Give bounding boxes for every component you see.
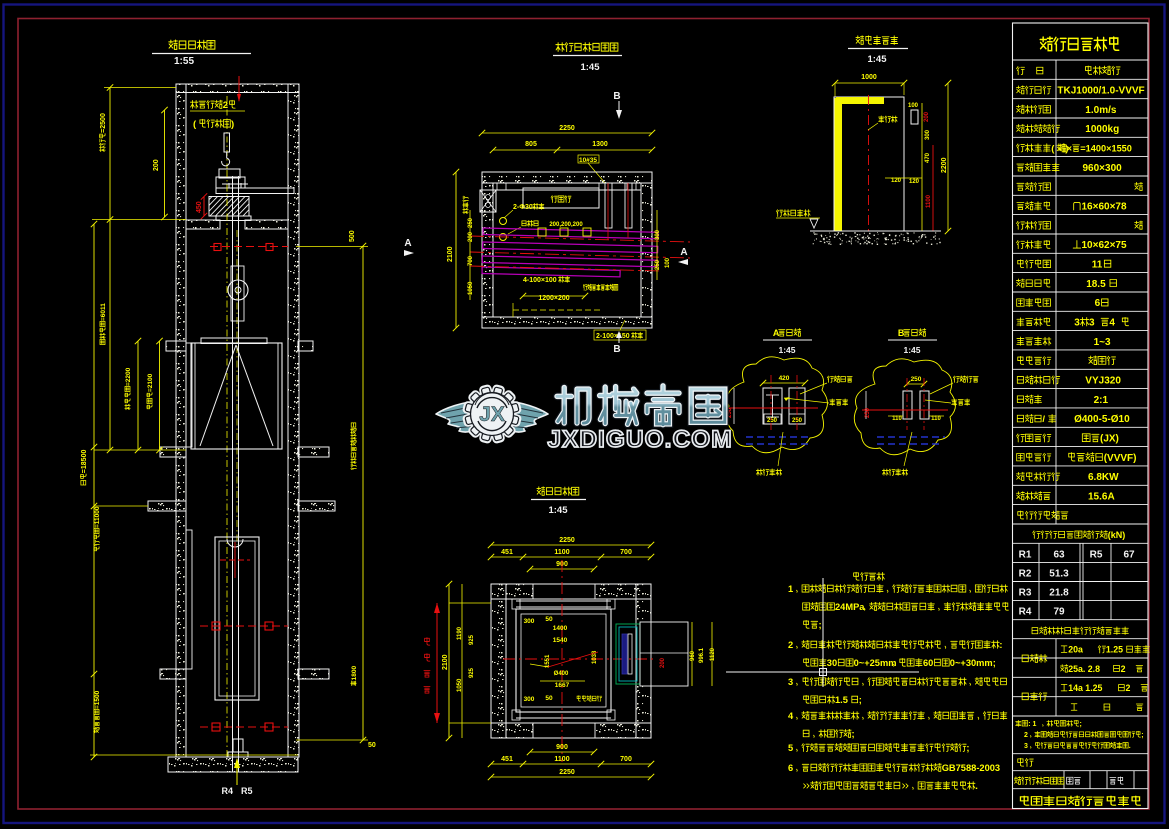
svg-text:110: 110 [931, 416, 941, 422]
svg-text:;: ; [966, 743, 969, 753]
svg-text:1:45: 1:45 [867, 54, 887, 65]
svg-text:2100: 2100 [442, 654, 449, 670]
svg-text:4-100×100: 4-100×100 [523, 277, 557, 284]
svg-text:6: 6 [788, 763, 793, 773]
svg-text:925: 925 [469, 667, 475, 678]
svg-text:R3: R3 [1019, 588, 1032, 599]
svg-text:;: ; [1080, 721, 1082, 728]
svg-text:R1: R1 [1019, 549, 1032, 560]
svg-text:1120: 1120 [710, 647, 716, 661]
svg-text:451: 451 [501, 756, 513, 763]
svg-text:2250: 2250 [559, 125, 575, 132]
svg-text:100: 100 [665, 257, 671, 268]
svg-text:2250: 2250 [559, 537, 575, 544]
svg-text:(JX): (JX) [1100, 434, 1119, 445]
svg-text:;: ; [859, 695, 862, 705]
svg-text:120: 120 [891, 178, 902, 184]
svg-text:1:45: 1:45 [903, 345, 920, 355]
svg-text:50: 50 [545, 695, 553, 702]
svg-text:A: A [680, 247, 687, 258]
svg-text:3: 3 [1089, 318, 1095, 329]
svg-text:1551: 1551 [545, 654, 551, 668]
svg-text:2200: 2200 [941, 157, 948, 173]
svg-text:=11000: =11000 [94, 506, 101, 528]
svg-text:=18500: =18500 [81, 450, 88, 474]
svg-text:200: 200 [924, 111, 930, 122]
svg-text:25a. 2.8: 25a. 2.8 [1068, 664, 1100, 674]
svg-text:1000: 1000 [861, 74, 877, 81]
svg-text:3: 3 [1024, 743, 1028, 750]
svg-text:11: 11 [1092, 260, 1103, 271]
svg-text:200: 200 [660, 657, 666, 668]
svg-text:B: B [613, 344, 620, 355]
svg-text:=1500: =1500 [94, 690, 101, 709]
svg-text:JXDIGUO.COM: JXDIGUO.COM [547, 426, 732, 453]
svg-text:GB7588-2003: GB7588-2003 [942, 763, 1000, 773]
svg-text:5: 5 [788, 743, 793, 753]
svg-text:JX: JX [479, 403, 505, 426]
svg-text:4: 4 [788, 711, 794, 721]
svg-text:18.5: 18.5 [1086, 279, 1106, 290]
svg-text:250: 250 [865, 407, 871, 418]
svg-text:0~+30mm;: 0~+30mm; [950, 658, 996, 668]
svg-text:63: 63 [1053, 549, 1065, 560]
svg-text:R4: R4 [221, 786, 233, 796]
svg-text:3: 3 [788, 677, 793, 687]
svg-text:1800: 1800 [351, 666, 358, 681]
svg-text:300: 300 [524, 618, 535, 625]
svg-text:6.8KW: 6.8KW [1088, 472, 1119, 483]
svg-text:2-Φ30: 2-Φ30 [513, 204, 533, 211]
svg-text:1100: 1100 [926, 194, 932, 208]
svg-text:60: 60 [923, 658, 933, 668]
svg-text:.: . [975, 781, 978, 791]
svg-text:700: 700 [620, 549, 632, 556]
svg-text:2: 2 [1121, 664, 1126, 674]
svg-text:1:45: 1:45 [580, 62, 600, 73]
svg-text:451: 451 [501, 549, 513, 556]
svg-text:300: 300 [925, 129, 931, 140]
svg-text:2: 2 [788, 640, 793, 650]
svg-text:30: 30 [827, 658, 837, 668]
svg-text:1667: 1667 [555, 682, 570, 689]
svg-text:960: 960 [690, 650, 696, 661]
svg-text:Ø400: Ø400 [554, 671, 569, 677]
svg-text:67: 67 [1123, 549, 1135, 560]
svg-text:2-100×150: 2-100×150 [596, 333, 630, 340]
svg-text:R5: R5 [1090, 549, 1103, 560]
svg-text:A: A [404, 238, 411, 249]
svg-text:1540: 1540 [553, 637, 568, 644]
svg-text:900: 900 [556, 744, 568, 751]
svg-text:200: 200 [153, 159, 160, 171]
svg-text:Ø400-5-Ø10: Ø400-5-Ø10 [1074, 414, 1130, 425]
svg-text:×: × [1067, 144, 1072, 154]
svg-text:420: 420 [779, 375, 790, 382]
svg-text:=6011: =6011 [100, 303, 107, 321]
svg-text:805: 805 [525, 141, 537, 148]
svg-text:20a: 20a [1068, 645, 1083, 655]
svg-text:1.25: 1.25 [1106, 645, 1123, 655]
svg-text:24MPa: 24MPa [835, 602, 865, 612]
svg-text:79: 79 [1053, 607, 1065, 618]
svg-text:15.6A: 15.6A [1088, 492, 1115, 503]
svg-text:700: 700 [620, 756, 632, 763]
svg-text:10×62×75: 10×62×75 [1082, 240, 1127, 251]
svg-text:2100: 2100 [447, 246, 454, 262]
svg-text:1190: 1190 [457, 626, 463, 640]
svg-text:2: 2 [1024, 732, 1028, 739]
svg-text:R5: R5 [241, 786, 253, 796]
svg-text:): ) [231, 119, 234, 130]
svg-text:.: . [1129, 743, 1131, 750]
svg-text:4: 4 [1109, 318, 1115, 329]
svg-text:1300: 1300 [592, 141, 608, 148]
svg-text:/: / [1042, 414, 1045, 425]
svg-text:;: ; [819, 620, 822, 630]
svg-text:300: 300 [524, 696, 535, 703]
svg-text:450: 450 [196, 201, 203, 213]
svg-text:3: 3 [1074, 318, 1080, 329]
svg-text:;: ; [852, 729, 855, 739]
svg-text:1000kg: 1000kg [1085, 124, 1119, 135]
svg-text:16×60×78: 16×60×78 [1082, 202, 1127, 213]
svg-text:120: 120 [909, 179, 920, 185]
svg-text:50: 50 [368, 742, 376, 749]
svg-text:250: 250 [655, 259, 661, 270]
svg-text:;: ; [1141, 732, 1143, 739]
svg-text:=2200: =2200 [125, 367, 132, 386]
svg-text:500: 500 [349, 230, 356, 242]
svg-text:110: 110 [892, 416, 902, 422]
svg-text:=2500: =2500 [100, 113, 107, 133]
svg-text:(VVVF): (VVVF) [1104, 453, 1137, 464]
svg-text:1100: 1100 [554, 756, 569, 763]
svg-text:1:45: 1:45 [778, 345, 795, 355]
svg-text:R4: R4 [1019, 607, 1032, 618]
svg-text:0~+25mm: 0~+25mm [854, 658, 897, 668]
svg-text:1:45: 1:45 [548, 505, 568, 516]
svg-text:925: 925 [469, 634, 475, 645]
svg-text:6: 6 [1095, 298, 1101, 309]
svg-text:250: 250 [911, 376, 922, 383]
svg-text:1100: 1100 [554, 549, 569, 556]
svg-text:1050: 1050 [457, 678, 463, 692]
svg-text:=2100: =2100 [147, 373, 154, 392]
svg-text:1: 1 [788, 584, 793, 594]
svg-text:470: 470 [925, 152, 931, 163]
svg-text:100: 100 [908, 103, 919, 109]
svg-text:51.3: 51.3 [1049, 568, 1069, 579]
svg-text:1400: 1400 [553, 625, 568, 632]
svg-text:2: 2 [1126, 683, 1131, 693]
svg-text:2:1: 2:1 [1094, 395, 1109, 406]
svg-text:960×300: 960×300 [1083, 163, 1123, 174]
svg-text:2250: 2250 [559, 769, 575, 776]
svg-text:14a 1.25: 14a 1.25 [1068, 683, 1102, 693]
svg-text:1.0m/s: 1.0m/s [1085, 105, 1117, 116]
svg-text:TKJ1000/1.0-VVVF: TKJ1000/1.0-VVVF [1057, 86, 1144, 97]
svg-text:21.8: 21.8 [1049, 588, 1069, 599]
svg-text:(kN): (kN) [1108, 530, 1126, 540]
svg-text:700: 700 [468, 255, 474, 266]
svg-text:200: 200 [468, 231, 474, 242]
svg-text:250: 250 [468, 217, 474, 228]
svg-text::: : [999, 640, 1002, 650]
svg-text:VYJ320: VYJ320 [1085, 376, 1121, 387]
svg-text:250: 250 [767, 418, 778, 424]
svg-text:1:55: 1:55 [174, 56, 194, 67]
svg-text:1~3: 1~3 [1094, 337, 1111, 348]
svg-text:50: 50 [545, 616, 553, 623]
svg-text:200,200,200: 200,200,200 [549, 222, 583, 228]
svg-text:B: B [613, 91, 620, 102]
svg-text:1050: 1050 [468, 281, 474, 295]
svg-text:1.5: 1.5 [835, 695, 848, 705]
svg-text:300: 300 [655, 229, 661, 240]
svg-text:: 1: : 1 [1028, 721, 1036, 728]
svg-text:R2: R2 [1019, 568, 1032, 579]
svg-text:996.1: 996.1 [699, 647, 705, 663]
svg-text:=1400×1550: =1400×1550 [1080, 144, 1132, 154]
